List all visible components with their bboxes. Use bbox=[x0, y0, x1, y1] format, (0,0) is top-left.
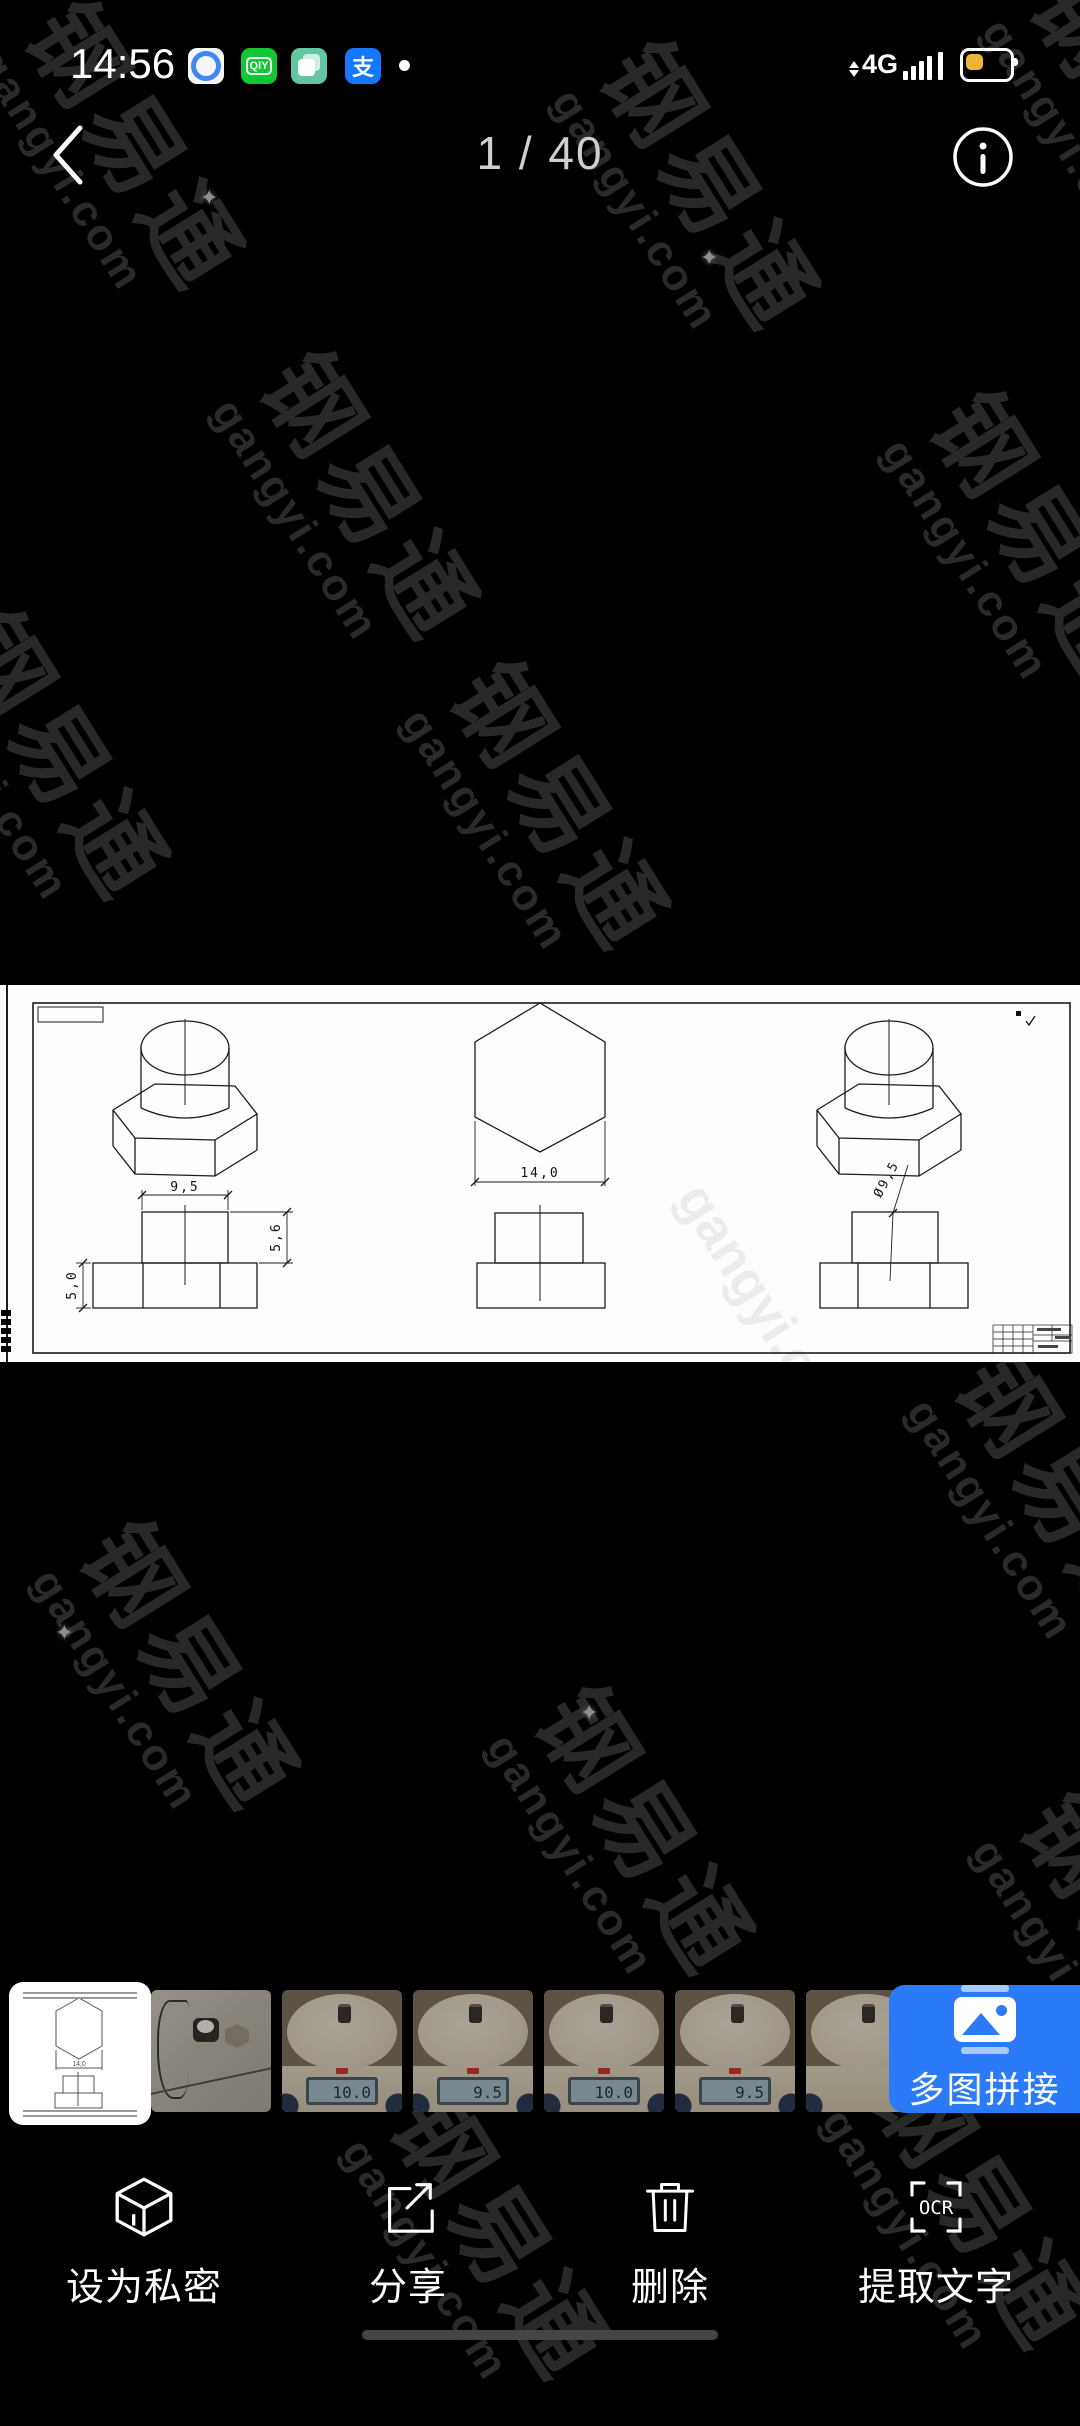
dim-nut-height: 5,0 bbox=[65, 1270, 80, 1299]
thumbnail-photo-scale[interactable]: 9.5 bbox=[675, 1990, 795, 2112]
albums-notification-icon bbox=[291, 48, 327, 84]
extract-text-button[interactable]: OCR 提取文字 bbox=[826, 2174, 1046, 2311]
network-type: 4G bbox=[862, 49, 898, 80]
screen: { "status_bar": { "time": "14:56", "netw… bbox=[0, 0, 1080, 2340]
dim-overlay bbox=[151, 1990, 271, 2112]
bottom-toolbar: 设为私密 分享 删除 bbox=[0, 2160, 1080, 2330]
mini-dim-label: 14,0 bbox=[72, 2061, 86, 2068]
thumbnail-photo-scale[interactable]: 10.0 bbox=[282, 1990, 402, 2112]
ocr-icon-label: OCR bbox=[919, 2197, 954, 2219]
delete-label: 删除 bbox=[631, 2256, 709, 2311]
sparkle-glint: ✦ bbox=[55, 1620, 73, 1646]
watermark-tile: 钢易通gangyi.com bbox=[394, 649, 685, 995]
set-private-label: 设为私密 bbox=[66, 2256, 222, 2311]
dim-overlay bbox=[282, 1990, 402, 2112]
set-private-button[interactable]: 设为私密 bbox=[34, 2174, 254, 2311]
watermark-tile: 钢易通gangyi.com bbox=[204, 339, 495, 685]
watermark-tile: 钢易通gangyi.com bbox=[0, 599, 184, 945]
alipay-notification-icon: 支 bbox=[345, 48, 381, 84]
sheet-edge-line bbox=[23, 1997, 137, 1999]
notification-dot-icon bbox=[399, 60, 410, 71]
status-bar: 14:56 QIY 支 4G bbox=[0, 38, 1080, 98]
delete-button[interactable]: 删除 bbox=[560, 2174, 780, 2311]
watermark-tile: 钢易通gangyi.com bbox=[874, 379, 1080, 725]
dim-boss-height: 5,6 bbox=[269, 1222, 284, 1251]
dim-boss-diameter: Ø9,5 bbox=[871, 1158, 903, 1200]
thumbnail-photo-sketch[interactable] bbox=[151, 1990, 271, 2112]
sheet-edge-line bbox=[23, 2110, 137, 2112]
iqiyi-notification-icon: QIY bbox=[241, 48, 277, 84]
dim-overlay bbox=[544, 1990, 664, 2112]
thumbnail-photo-scale[interactable]: 9.5 bbox=[413, 1990, 533, 2112]
header: 1 / 40 bbox=[0, 118, 1080, 198]
info-button[interactable] bbox=[952, 126, 1014, 188]
dim-overlay bbox=[675, 1990, 795, 2112]
thumbnail-strip: 14,0 10.0 9.5 10.0 bbox=[0, 1980, 1080, 2130]
sheet-edge-line bbox=[23, 1992, 137, 1994]
dim-overlay bbox=[413, 1990, 533, 2112]
trash-icon bbox=[640, 2174, 700, 2240]
drawing-sheet[interactable]: 9,5 5,6 5,0 14,0 Ø9,5 bbox=[0, 985, 1080, 1362]
clock: 14:56 bbox=[70, 40, 175, 88]
thumbnail-photo-scale[interactable]: 10.0 bbox=[544, 1990, 664, 2112]
thumbnail-selected-drawing[interactable]: 14,0 bbox=[9, 1982, 151, 2125]
sheet-edge-line bbox=[23, 2115, 137, 2117]
dim-boss-width: 9,5 bbox=[170, 1180, 199, 1195]
stitch-button-label: 多图拼接 bbox=[908, 2061, 1060, 2113]
watermark-tile: 钢易通gangyi.com bbox=[479, 1674, 770, 2020]
private-box-icon bbox=[111, 2174, 177, 2240]
mini-drawing: 14,0 bbox=[9, 1982, 151, 2125]
share-icon bbox=[377, 2174, 439, 2240]
sparkle-glint: ✦ bbox=[580, 1700, 598, 1726]
qq-browser-notification-icon bbox=[188, 48, 224, 84]
stitch-bar-top bbox=[961, 1985, 1009, 1992]
page-counter: 1 / 40 bbox=[0, 126, 1080, 180]
cad-drawing: 9,5 5,6 5,0 14,0 Ø9,5 bbox=[0, 985, 1080, 1362]
home-indicator[interactable] bbox=[362, 2330, 718, 2340]
image-stitch-icon bbox=[954, 1997, 1016, 2043]
share-label: 分享 bbox=[369, 2256, 447, 2311]
watermark-tile: 钢易通gangyi.com bbox=[899, 1339, 1080, 1685]
data-updown-icon bbox=[849, 61, 859, 77]
dim-hex-width: 14,0 bbox=[520, 1166, 559, 1181]
share-button[interactable]: 分享 bbox=[298, 2174, 518, 2311]
sparkle-glint: ✦ bbox=[700, 245, 718, 271]
title-block bbox=[993, 1325, 1072, 1353]
multi-image-stitch-button[interactable]: 多图拼接 bbox=[889, 1985, 1080, 2113]
watermark-tile: 钢易通gangyi.com bbox=[24, 1509, 315, 1855]
extract-text-label: 提取文字 bbox=[858, 2256, 1014, 2311]
battery-icon bbox=[960, 48, 1014, 82]
stitch-bar-bottom bbox=[961, 2047, 1009, 2054]
ocr-icon: OCR bbox=[904, 2174, 968, 2240]
signal-strength-icon bbox=[903, 52, 946, 80]
